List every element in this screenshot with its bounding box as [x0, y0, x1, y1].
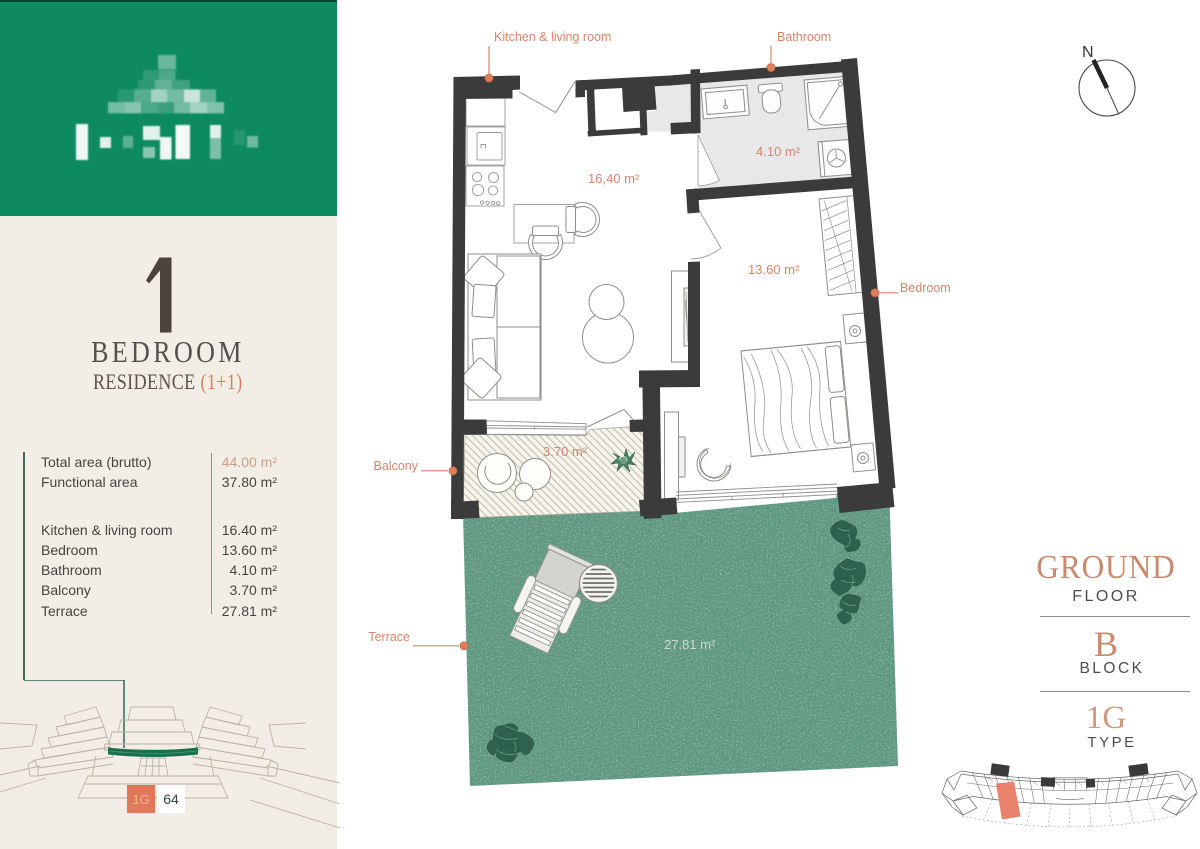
svg-text:13.60 m²: 13.60 m² [748, 262, 800, 277]
svg-text:3.70 m²: 3.70 m² [543, 444, 588, 459]
svg-text:4.10 m²: 4.10 m² [756, 144, 801, 159]
svg-text:Bedroom: Bedroom [900, 281, 951, 295]
svg-text:Bathroom: Bathroom [777, 30, 831, 44]
svg-text:16,40 m²: 16,40 m² [588, 171, 640, 186]
svg-text:N: N [1082, 44, 1094, 61]
svg-text:Kitchen & living room: Kitchen & living room [494, 30, 611, 44]
svg-text:27.81 m²: 27.81 m² [664, 637, 716, 652]
svg-text:Terrace: Terrace [368, 630, 410, 644]
svg-text:Balcony: Balcony [374, 459, 419, 473]
